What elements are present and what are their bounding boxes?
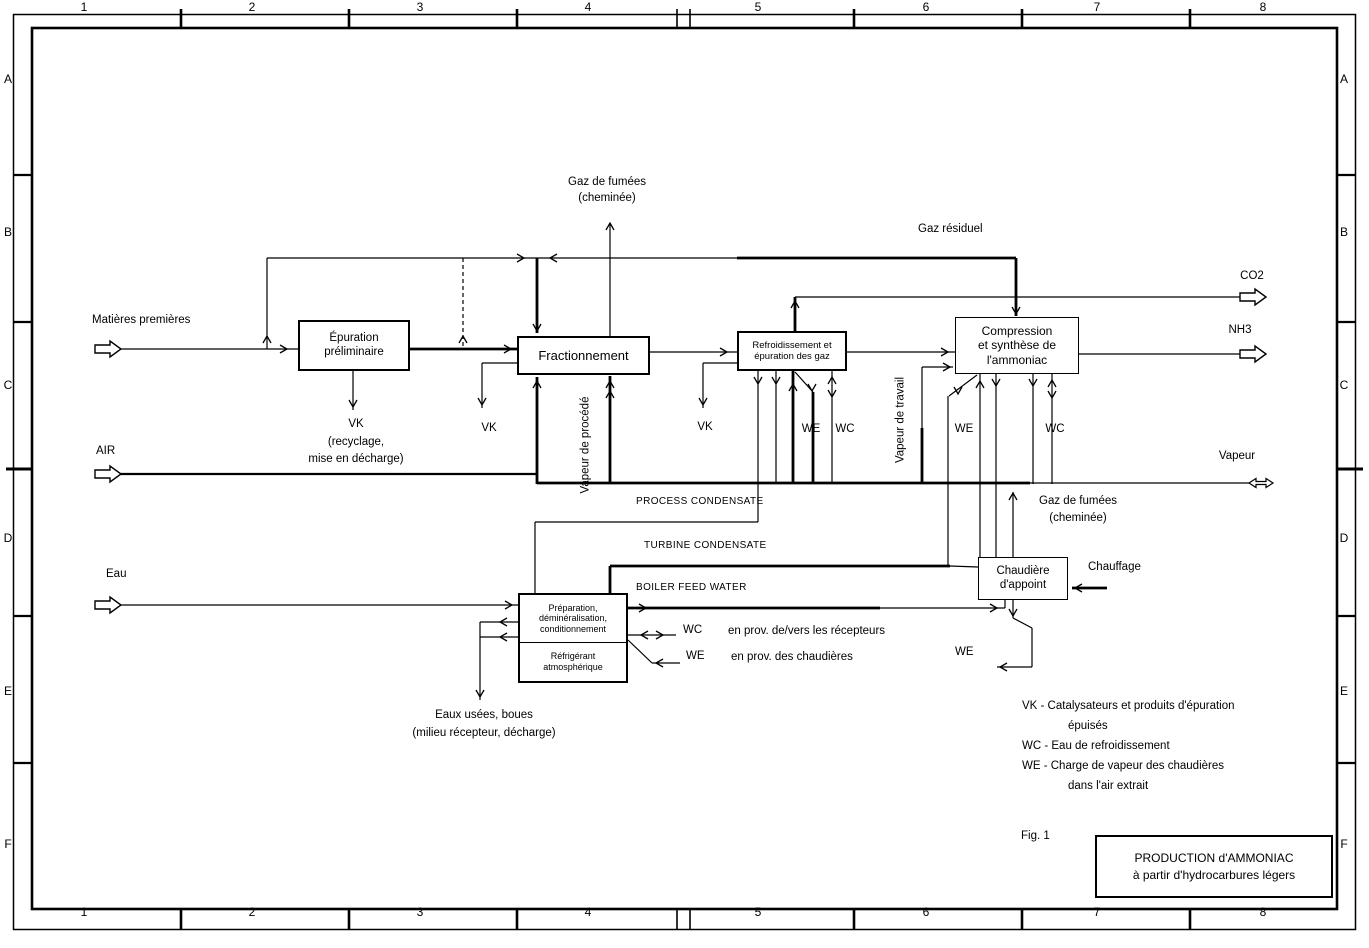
compartment-preparation: Préparation, déminéralisation, condition… — [520, 595, 626, 642]
figure-label: Fig. 1 — [1021, 830, 1050, 843]
frame-row-label-right: D — [1340, 531, 1349, 545]
frame-column-label-top: 8 — [1260, 0, 1267, 14]
frame-column-label-bottom: 4 — [585, 905, 592, 919]
label-vapeur-travail: Vapeur de travail — [894, 377, 907, 463]
compartment-refrigerant: Réfrigérant atmosphérique — [520, 642, 626, 681]
label-gaz-fumees-chaudiere-1: Gaz de fumées — [1039, 495, 1117, 508]
frame-row-label-left: C — [4, 378, 13, 392]
box-chaudiere-appoint: Chaudière d'appoint — [978, 557, 1068, 600]
title-block: PRODUCTION d'AMMONIAC à partir d'hydroca… — [1095, 835, 1333, 898]
block-arrow-right-icon — [95, 466, 121, 482]
box-label: Épuration — [329, 332, 378, 346]
box-label: Préparation, — [548, 603, 597, 614]
label-boiler-feed-water: BOILER FEED WATER — [636, 582, 747, 594]
label-gaz-fumees-top-1: Gaz de fumées — [568, 176, 646, 189]
label-wc-compression: WC — [1045, 423, 1064, 436]
label-co2: CO2 — [1240, 270, 1264, 283]
box-label: épuration des gaz — [754, 351, 830, 362]
label-wc-refroidissement: WC — [835, 423, 854, 436]
frame-row-label-left: F — [4, 837, 11, 851]
arrowhead — [459, 336, 467, 343]
frame-row-label-left: B — [4, 225, 12, 239]
frame-column-label-top: 7 — [1094, 0, 1101, 14]
box-refroidissement: Refroidissement et épuration des gaz — [737, 331, 847, 371]
frame-column-label-bottom: 3 — [417, 905, 424, 919]
legend-we-line-2: dans l'air extrait — [1068, 780, 1148, 793]
flow-line — [1013, 618, 1032, 628]
frame-row-label-left: D — [4, 531, 13, 545]
title-line-1: PRODUCTION d'AMMONIAC — [1135, 851, 1294, 865]
double-arrow-horizontal-icon — [1249, 479, 1273, 488]
legend-we-line-1: WE - Charge de vapeur des chaudières — [1022, 760, 1224, 773]
label-chauffage: Chauffage — [1088, 561, 1141, 574]
box-label: et synthèse de — [978, 338, 1056, 352]
label-gaz-residuel: Gaz résiduel — [918, 223, 983, 236]
frame-column-label-bottom: 2 — [249, 905, 256, 919]
block-arrow-right-icon — [1240, 289, 1266, 305]
label-air: AIR — [96, 445, 115, 458]
frame-column-label-bottom: 5 — [755, 905, 762, 919]
label-vk-fractionnement: VK — [481, 422, 496, 435]
frame-column-label-bottom: 7 — [1094, 905, 1101, 919]
title-line-2: à partir d'hydrocarbures légers — [1133, 868, 1295, 882]
label-turbine-condensate: TURBINE CONDENSATE — [644, 540, 767, 552]
block-arrow-right-icon — [95, 597, 121, 613]
legend-wc-line: WC - Eau de refroidissement — [1022, 740, 1170, 753]
frame-column-label-top: 2 — [249, 0, 256, 14]
frame-column-label-bottom: 1 — [81, 905, 88, 919]
label-recyclage-2: mise en décharge) — [308, 453, 403, 466]
frame-row-label-right: F — [1340, 837, 1347, 851]
box-label: Fractionnement — [538, 348, 628, 364]
frame-column-label-bottom: 8 — [1260, 905, 1267, 919]
label-nh3: NH3 — [1228, 324, 1251, 337]
frame-row-label-left: E — [4, 684, 12, 698]
label-we-refroidissement: WE — [802, 423, 821, 436]
frame-column-label-bottom: 6 — [923, 905, 930, 919]
block-arrow-right-icon — [95, 341, 121, 357]
label-wc-recepteurs: en prov. de/vers les récepteurs — [728, 625, 885, 638]
label-gaz-fumees-top-2: (cheminée) — [578, 192, 636, 205]
label-vk-epuration: VK — [348, 418, 363, 431]
frame-column-label-top: 4 — [585, 0, 592, 14]
box-compression-synthese: Compression et synthèse de l'ammoniac — [955, 317, 1079, 374]
box-label: d'appoint — [1000, 579, 1046, 593]
box-label: l'ammoniac — [987, 353, 1047, 367]
flow-line — [950, 566, 978, 567]
box-label: Réfrigérant — [551, 651, 596, 662]
box-epuration-preliminaire: Épuration préliminaire — [298, 320, 410, 371]
box-preparation-eau: Préparation, déminéralisation, condition… — [518, 593, 628, 683]
legend-vk-line-2: épuisés — [1068, 720, 1108, 733]
frame-inner-border — [32, 28, 1337, 909]
frame-outer-border — [14, 15, 1356, 930]
frame-row-label-left: A — [4, 72, 12, 86]
drawing-sheet: Épuration préliminaire Fractionnement Re… — [0, 0, 1369, 948]
block-arrow-right-icon — [1240, 346, 1266, 362]
box-label: Refroidissement et — [752, 340, 831, 351]
frame-column-label-top: 1 — [81, 0, 88, 14]
label-process-condensate: PROCESS CONDENSATE — [636, 496, 764, 508]
frame-row-label-right: C — [1340, 378, 1349, 392]
frame-column-label-top: 3 — [417, 0, 424, 14]
box-label: atmosphérique — [543, 662, 603, 673]
box-fractionnement: Fractionnement — [517, 336, 650, 375]
box-label: préliminaire — [324, 346, 383, 360]
frame-row-label-right: A — [1340, 72, 1348, 86]
frame-row-label-right: E — [1340, 684, 1348, 698]
label-matieres-premieres: Matières premières — [92, 314, 190, 327]
label-recyclage-1: (recyclage, — [328, 436, 384, 449]
box-label: Compression — [982, 324, 1053, 338]
label-eau: Eau — [106, 568, 126, 581]
label-wc-preparation: WC — [683, 624, 702, 637]
label-vk-refroidissement: VK — [697, 421, 712, 434]
flow-line — [628, 640, 652, 663]
label-eaux-usees-1: Eaux usées, boues — [435, 709, 533, 722]
label-vapeur: Vapeur — [1219, 450, 1255, 463]
label-we-compression: WE — [955, 423, 974, 436]
label-we-chaudiere-out: WE — [955, 646, 974, 659]
frame-row-label-right: B — [1340, 225, 1348, 239]
frame-column-label-top: 6 — [923, 0, 930, 14]
flow-line — [949, 375, 977, 396]
arrowhead — [954, 387, 962, 394]
legend-vk-line-1: VK - Catalysateurs et produits d'épurati… — [1022, 700, 1235, 713]
box-label: Chaudière — [996, 565, 1049, 579]
label-eaux-usees-2: (milieu récepteur, décharge) — [412, 727, 555, 740]
box-label: déminéralisation, — [539, 613, 607, 624]
label-vapeur-procede: Vapeur de procédé — [579, 397, 592, 494]
diagram-linework — [0, 0, 1369, 948]
label-we-chaudieres: en prov. des chaudières — [731, 651, 853, 664]
label-gaz-fumees-chaudiere-2: (cheminée) — [1049, 512, 1107, 525]
frame-column-label-top: 5 — [755, 0, 762, 14]
box-label: conditionnement — [540, 624, 606, 635]
label-we-preparation: WE — [686, 650, 705, 663]
